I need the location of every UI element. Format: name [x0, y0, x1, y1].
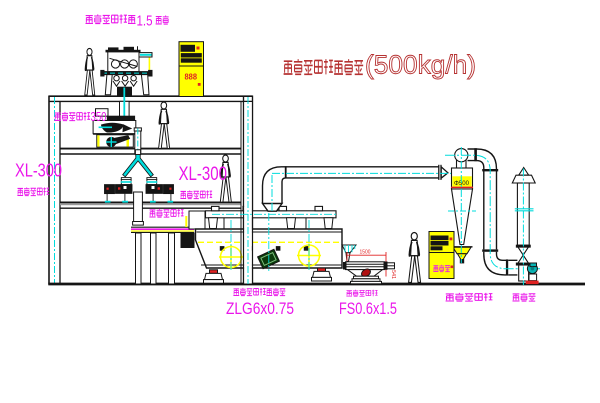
svg-text:FS0.6x1.5: FS0.6x1.5 [339, 300, 397, 318]
svg-text:Φ500: Φ500 [454, 181, 470, 187]
svg-text:888: 888 [185, 73, 198, 82]
svg-text:(500kg/h): (500kg/h) [365, 50, 476, 80]
svg-text:XL-300: XL-300 [179, 163, 228, 185]
svg-text:350: 350 [91, 109, 107, 124]
svg-text:1500: 1500 [360, 250, 371, 256]
svg-text:1.5: 1.5 [137, 13, 153, 30]
svg-text:ZLG6x0.75: ZLG6x0.75 [226, 300, 294, 318]
svg-text:XL-300: XL-300 [15, 160, 62, 181]
svg-text:541: 541 [390, 270, 396, 279]
